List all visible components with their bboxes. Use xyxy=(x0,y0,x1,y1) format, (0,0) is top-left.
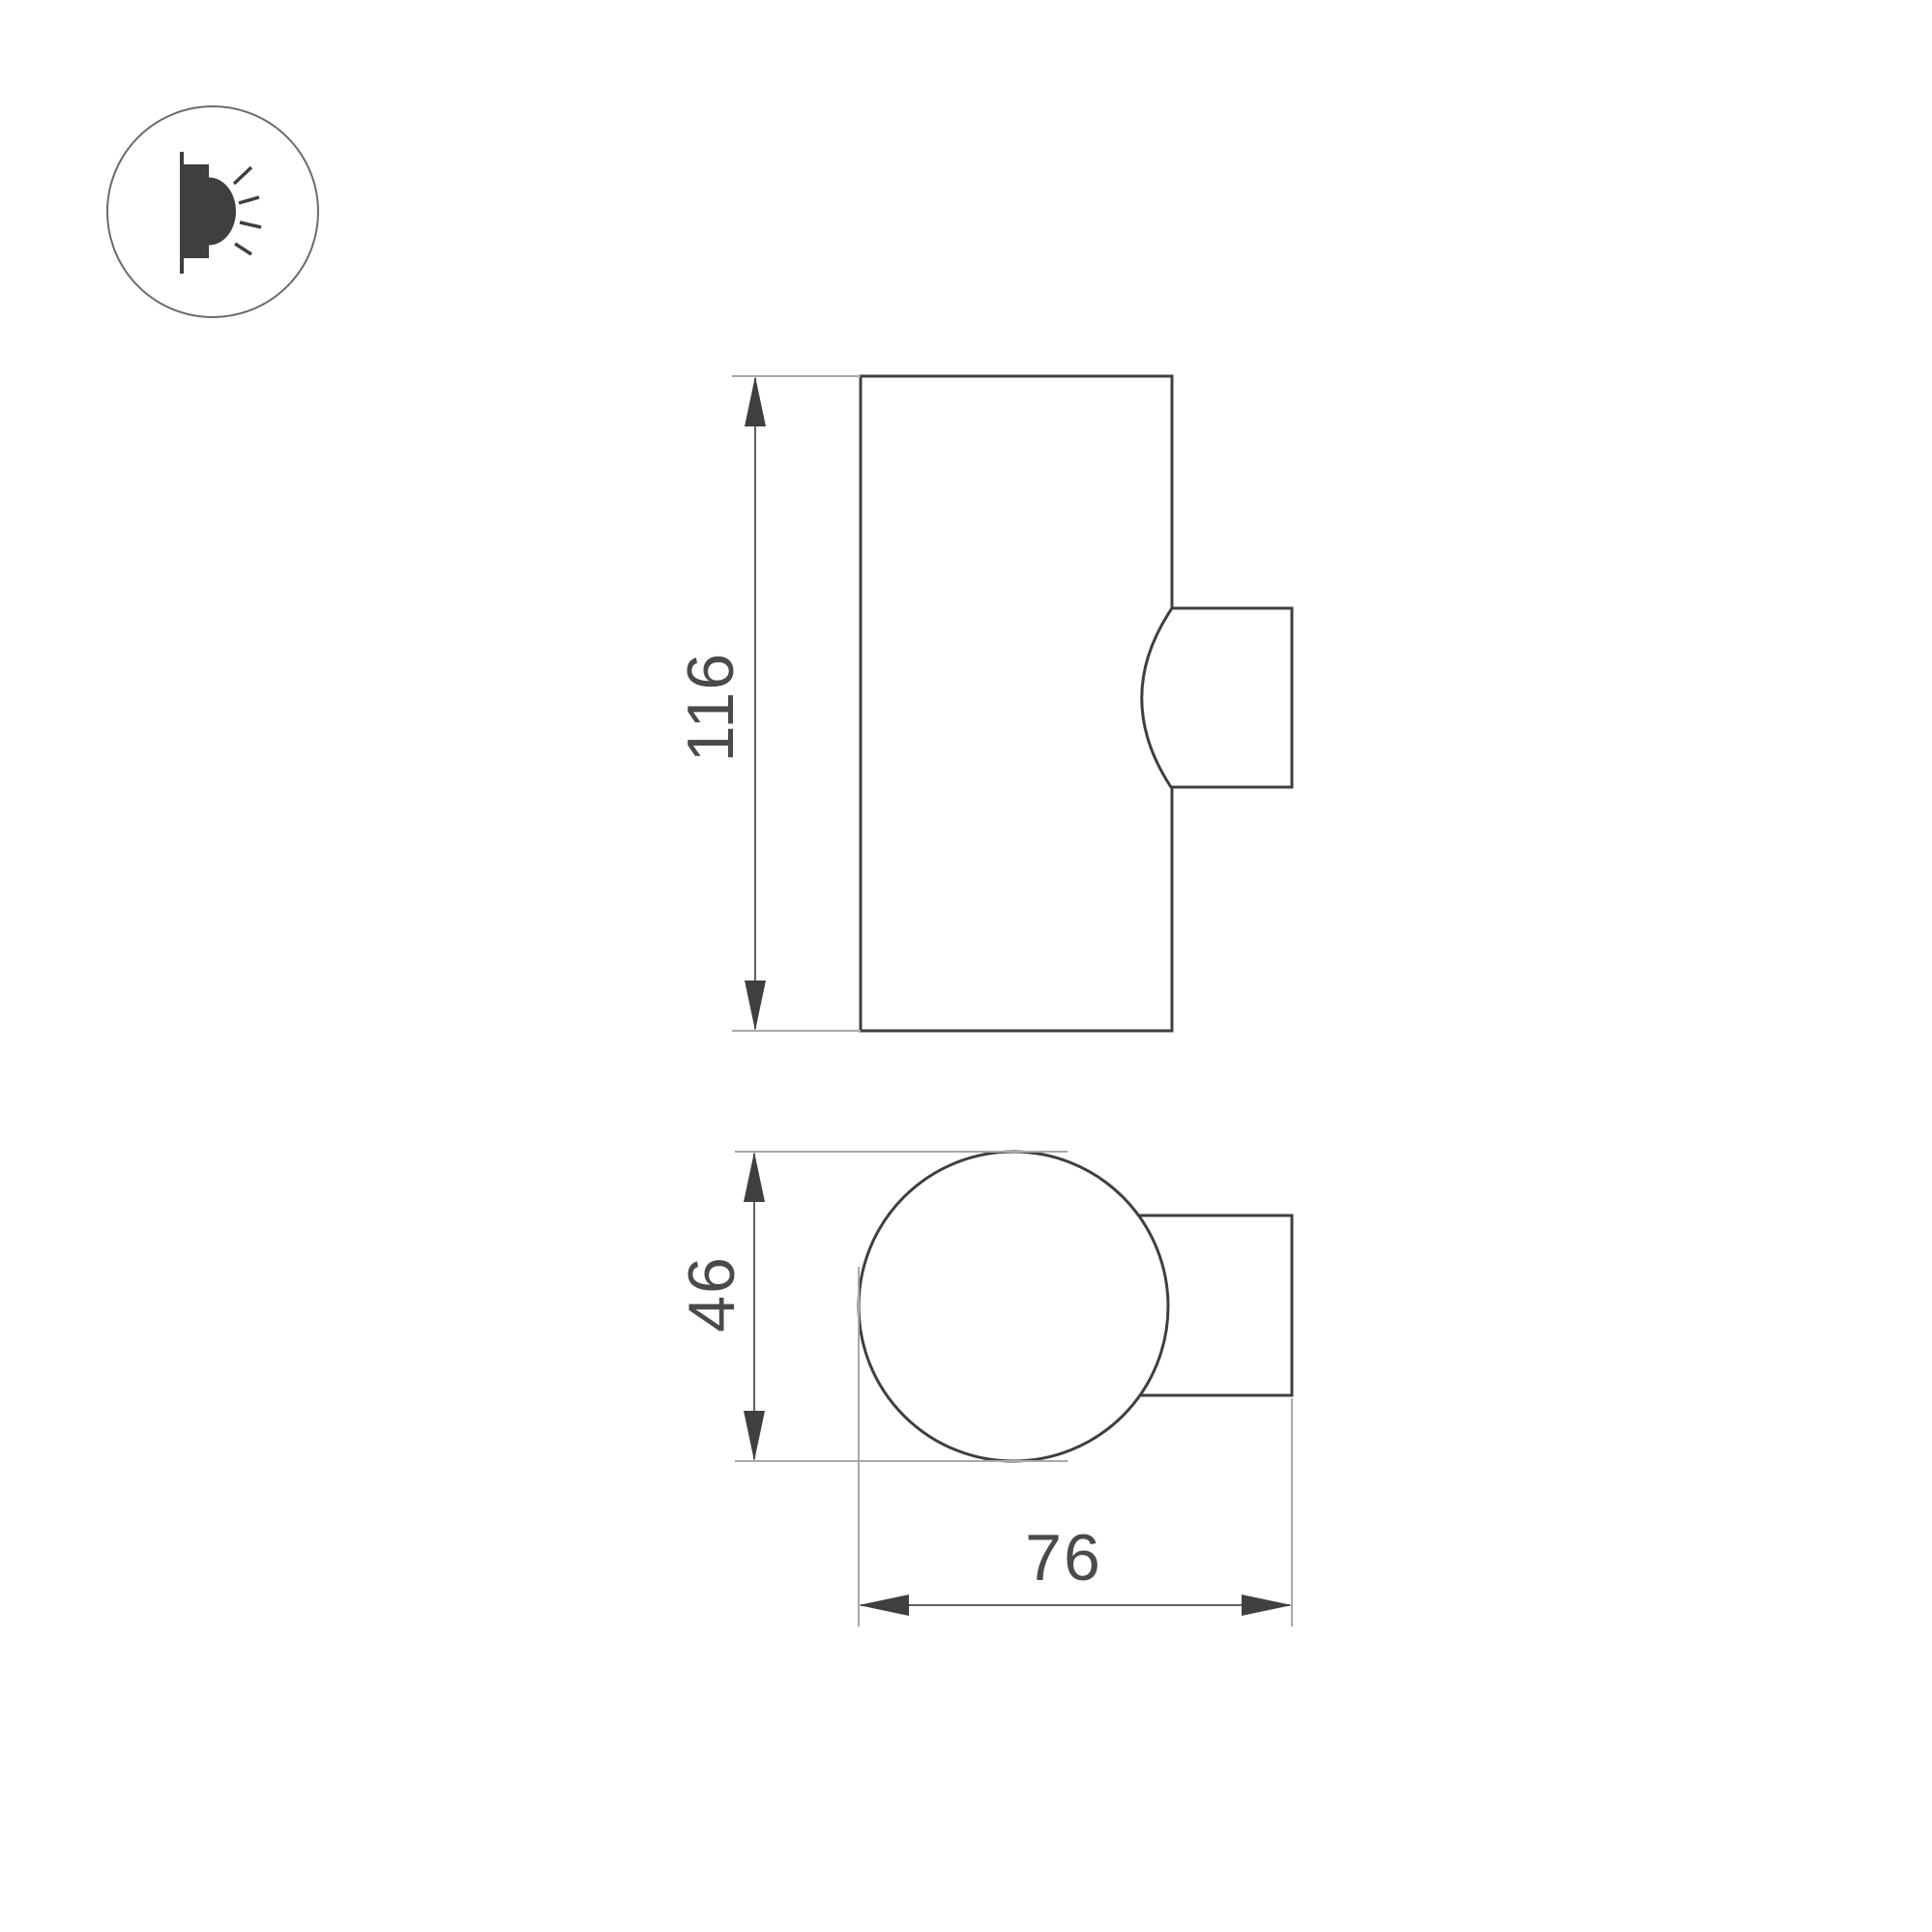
depth-dimension: 76 xyxy=(859,1267,1292,1626)
top-view-body-circle xyxy=(859,1152,1168,1461)
height-dimension-label: 116 xyxy=(674,652,747,762)
depth-dimension-label: 76 xyxy=(1025,1521,1102,1595)
icon-lamp-body xyxy=(184,164,209,258)
arrow-up-icon xyxy=(744,1152,765,1202)
product-front-view xyxy=(861,376,1292,1031)
arrow-right-icon xyxy=(1242,1595,1292,1616)
wall-lamp-icon xyxy=(107,106,318,317)
arrow-left-icon xyxy=(859,1595,909,1616)
arrow-down-icon xyxy=(744,1411,765,1461)
arrow-up-icon xyxy=(745,376,766,426)
drawing-svg: 116 46 76 xyxy=(0,0,1932,1932)
diameter-dimension-label: 46 xyxy=(675,1255,748,1332)
product-top-view xyxy=(859,1152,1292,1461)
diameter-dimension: 46 xyxy=(675,1152,1068,1461)
technical-dimension-drawing: 116 46 76 xyxy=(0,0,1932,1932)
height-dimension: 116 xyxy=(674,376,861,1031)
front-view-body-outline xyxy=(861,376,1172,1031)
top-view-bracket xyxy=(1138,1215,1292,1395)
icon-wall-line xyxy=(180,152,184,274)
arrow-down-icon xyxy=(745,981,766,1031)
front-view-bracket xyxy=(1142,608,1292,787)
